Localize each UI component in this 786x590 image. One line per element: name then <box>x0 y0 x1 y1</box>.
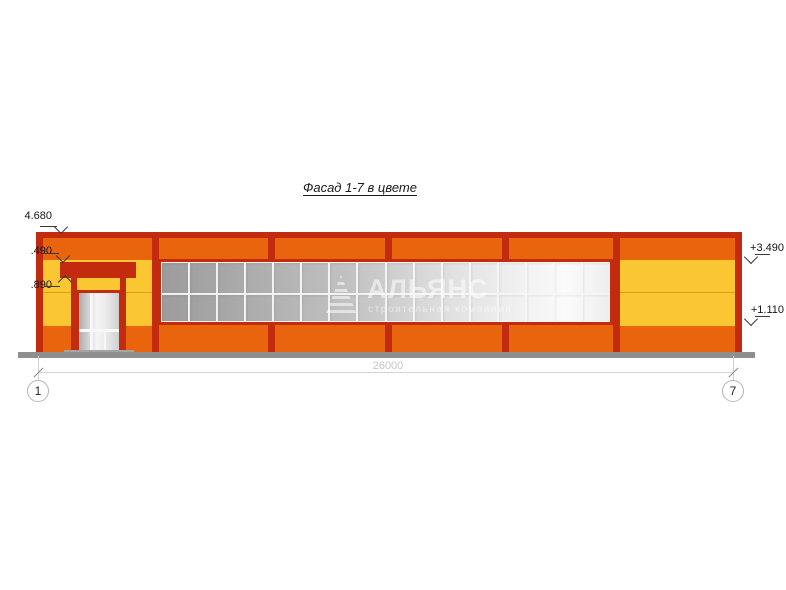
elevation-label-canopy: .890 <box>0 279 52 291</box>
window-pane <box>526 262 554 294</box>
window-pane <box>582 262 610 294</box>
extension-line-right <box>733 356 734 381</box>
window-pane <box>217 294 245 322</box>
extension-line-left <box>38 356 39 381</box>
window-pane <box>526 294 554 322</box>
facade-elevation <box>36 232 742 352</box>
elevation-label-parapet: 4.680 <box>0 210 52 222</box>
window-band <box>158 259 613 325</box>
dimension-line <box>38 372 733 373</box>
window-pane <box>329 294 357 322</box>
pilaster <box>613 232 620 352</box>
window-pane <box>273 294 301 322</box>
window-pane <box>245 294 273 322</box>
window-pane <box>498 294 526 322</box>
ground-line <box>18 352 755 358</box>
window-pane <box>357 294 385 322</box>
window-pane <box>161 294 189 322</box>
axis-marker-1: 1 <box>27 380 49 402</box>
window-pane <box>217 262 245 294</box>
axis-marker-7-label: 7 <box>730 384 737 398</box>
window-pane <box>582 294 610 322</box>
window-pane <box>329 262 357 294</box>
door-mullion <box>104 332 106 352</box>
door-mullion <box>90 293 93 352</box>
level-line <box>44 286 60 287</box>
window-pane <box>161 262 189 294</box>
window-pane <box>442 294 470 322</box>
axis-marker-1-label: 1 <box>35 384 42 398</box>
elevation-label-window-top-left: .490 <box>0 245 52 257</box>
window-pane <box>357 262 385 294</box>
yellow-band-right <box>620 260 735 326</box>
window-pane <box>554 294 582 322</box>
window-pane <box>470 294 498 322</box>
panel-joint-line <box>620 292 735 293</box>
parapet-band <box>36 232 742 238</box>
window-pane <box>554 262 582 294</box>
window-pane <box>414 294 442 322</box>
window-pane <box>470 262 498 294</box>
facade-drawing-canvas: Фасад 1-7 в цвете <box>0 0 786 590</box>
door-rail <box>79 329 119 332</box>
window-pane <box>245 262 273 294</box>
dimension-label: 26000 <box>328 360 448 372</box>
entrance-door <box>76 290 122 352</box>
level-line <box>755 316 770 317</box>
door-glass <box>79 293 119 352</box>
window-pane <box>273 262 301 294</box>
window-pane <box>386 294 414 322</box>
window-pane <box>189 294 217 322</box>
window-grid <box>161 262 610 322</box>
entrance-canopy <box>60 262 136 278</box>
window-pane <box>498 262 526 294</box>
window-glass <box>161 262 610 322</box>
window-pane <box>414 262 442 294</box>
window-pane <box>301 262 329 294</box>
window-pane <box>442 262 470 294</box>
drawing-title: Фасад 1-7 в цвете <box>260 180 460 195</box>
window-pane <box>189 262 217 294</box>
axis-marker-7: 7 <box>722 380 744 402</box>
window-pane <box>386 262 414 294</box>
window-pane <box>301 294 329 322</box>
level-line <box>755 254 770 255</box>
